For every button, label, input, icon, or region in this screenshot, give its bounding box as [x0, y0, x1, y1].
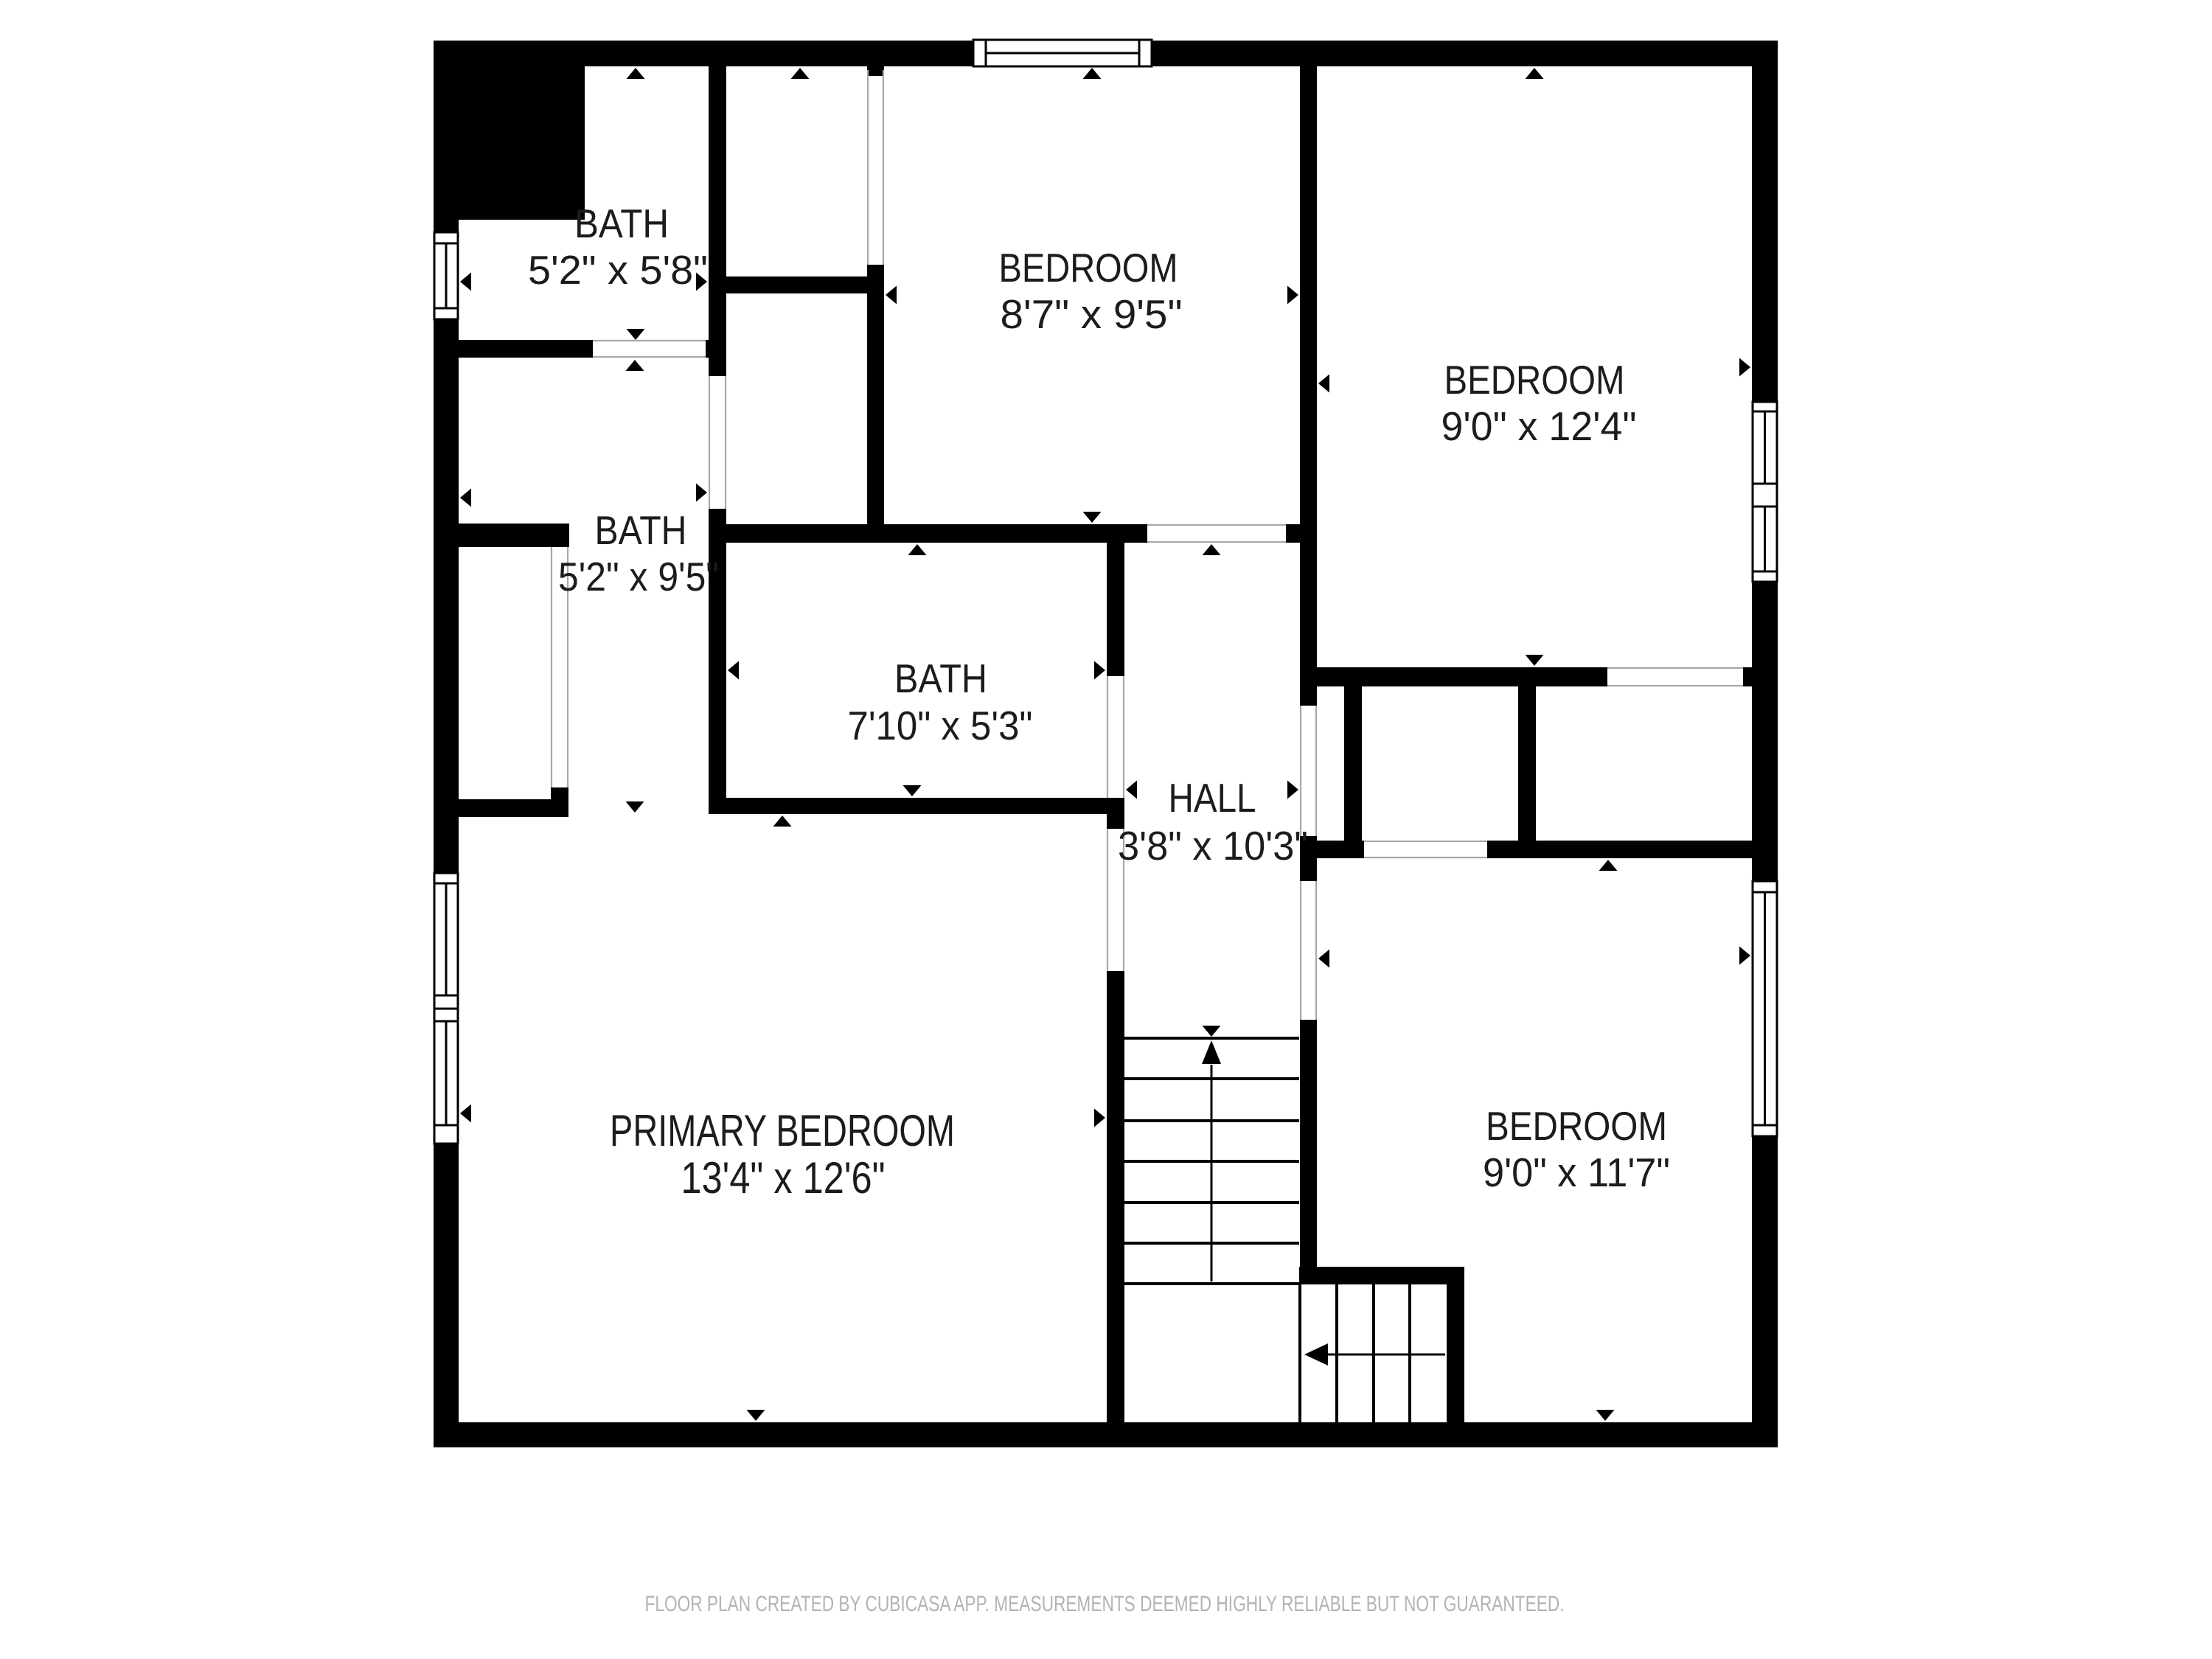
svg-text:8'7" x 9'5": 8'7" x 9'5"	[1001, 291, 1183, 337]
svg-text:7'10" x 5'3": 7'10" x 5'3"	[848, 703, 1033, 748]
svg-text:3'8" x 10'3": 3'8" x 10'3"	[1118, 823, 1308, 869]
svg-text:BEDROOM: BEDROOM	[1486, 1103, 1667, 1149]
svg-text:9'0" x 12'4": 9'0" x 12'4"	[1441, 403, 1637, 449]
svg-text:BATH: BATH	[894, 655, 987, 701]
svg-text:BEDROOM: BEDROOM	[1444, 357, 1625, 403]
svg-text:BATH: BATH	[595, 507, 687, 553]
svg-text:5'2" x 9'5": 5'2" x 9'5"	[558, 554, 719, 599]
svg-text:HALL: HALL	[1169, 775, 1256, 821]
svg-text:BEDROOM: BEDROOM	[999, 245, 1178, 291]
svg-text:5'2" x 5'8": 5'2" x 5'8"	[528, 247, 708, 293]
svg-text:9'0" x 11'7": 9'0" x 11'7"	[1483, 1150, 1670, 1195]
svg-text:BATH: BATH	[574, 201, 669, 246]
svg-text:13'4" x 12'6": 13'4" x 12'6"	[681, 1153, 886, 1203]
svg-text:PRIMARY BEDROOM: PRIMARY BEDROOM	[610, 1106, 955, 1155]
svg-text:FLOOR PLAN CREATED BY CUBICASA: FLOOR PLAN CREATED BY CUBICASA APP. MEAS…	[645, 1592, 1565, 1616]
